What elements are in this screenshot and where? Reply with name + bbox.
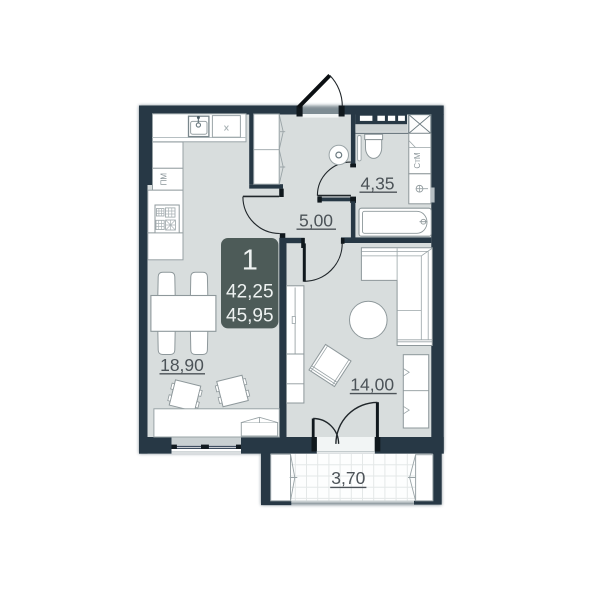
svg-text:3,70: 3,70 (331, 468, 365, 488)
svg-text:ПМ: ПМ (160, 173, 169, 186)
svg-text:42,25: 42,25 (226, 282, 274, 303)
svg-text:4,35: 4,35 (360, 174, 394, 194)
svg-text:СтМ: СтМ (413, 152, 422, 168)
svg-text:1: 1 (242, 244, 258, 276)
svg-text:18,90: 18,90 (160, 355, 204, 375)
svg-text:14,00: 14,00 (350, 374, 394, 394)
svg-text:45,95: 45,95 (226, 306, 274, 327)
svg-text:5,00: 5,00 (299, 211, 333, 231)
